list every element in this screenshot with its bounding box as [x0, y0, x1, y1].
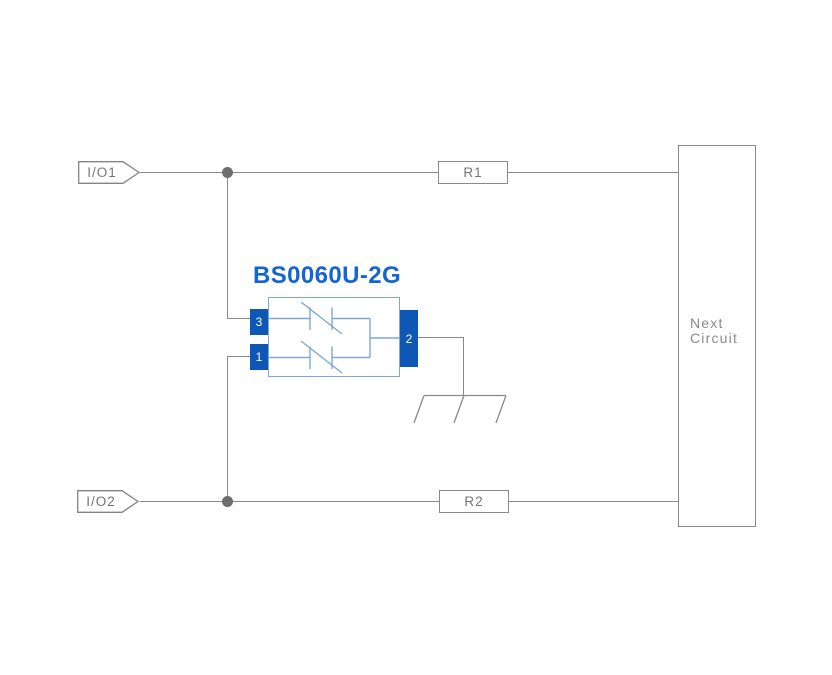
resistor-r1: R1 [438, 161, 508, 184]
circuit-diagram: I/O1 I/O2 R1 R2 Next Circuit BS0060U-2G [0, 0, 832, 675]
next-circuit-line2: Circuit [690, 331, 738, 346]
io2-label: I/O2 [77, 490, 125, 513]
next-circuit-line1: Next [690, 316, 738, 331]
pin-2-number: 2 [406, 332, 413, 346]
next-circuit-label: Next Circuit [690, 316, 738, 346]
junction-dot-top [222, 167, 233, 178]
r1-label: R1 [463, 165, 482, 180]
wire-stub-pin1 [227, 356, 250, 357]
capacitor-symbols-icon [268, 297, 400, 377]
wire-io2-to-r2 [140, 501, 439, 502]
chassis-ground-icon [406, 394, 518, 426]
wire-r1-to-next-circuit [508, 172, 678, 173]
pin-3: 3 [250, 309, 268, 335]
io2-flag: I/O2 [77, 490, 139, 513]
wire-io1-branch-down [227, 172, 228, 319]
wire-r2-to-next-circuit [509, 501, 678, 502]
wire-io1-to-r1 [140, 172, 438, 173]
wire-io2-branch-up [227, 356, 228, 502]
pin-3-number: 3 [256, 315, 263, 329]
wire-pin2-to-ground [463, 337, 464, 395]
pin-1-number: 1 [256, 350, 263, 364]
r2-label: R2 [464, 494, 483, 509]
io1-flag: I/O1 [78, 161, 140, 184]
component-title: BS0060U-2G [253, 262, 401, 290]
resistor-r2: R2 [439, 490, 509, 513]
junction-dot-bottom [222, 496, 233, 507]
wire-stub-pin3 [227, 318, 250, 319]
pin-2: 2 [400, 310, 418, 367]
io1-label: I/O1 [78, 161, 126, 184]
wire-pin2-out [418, 337, 464, 338]
pin-1: 1 [250, 344, 268, 370]
